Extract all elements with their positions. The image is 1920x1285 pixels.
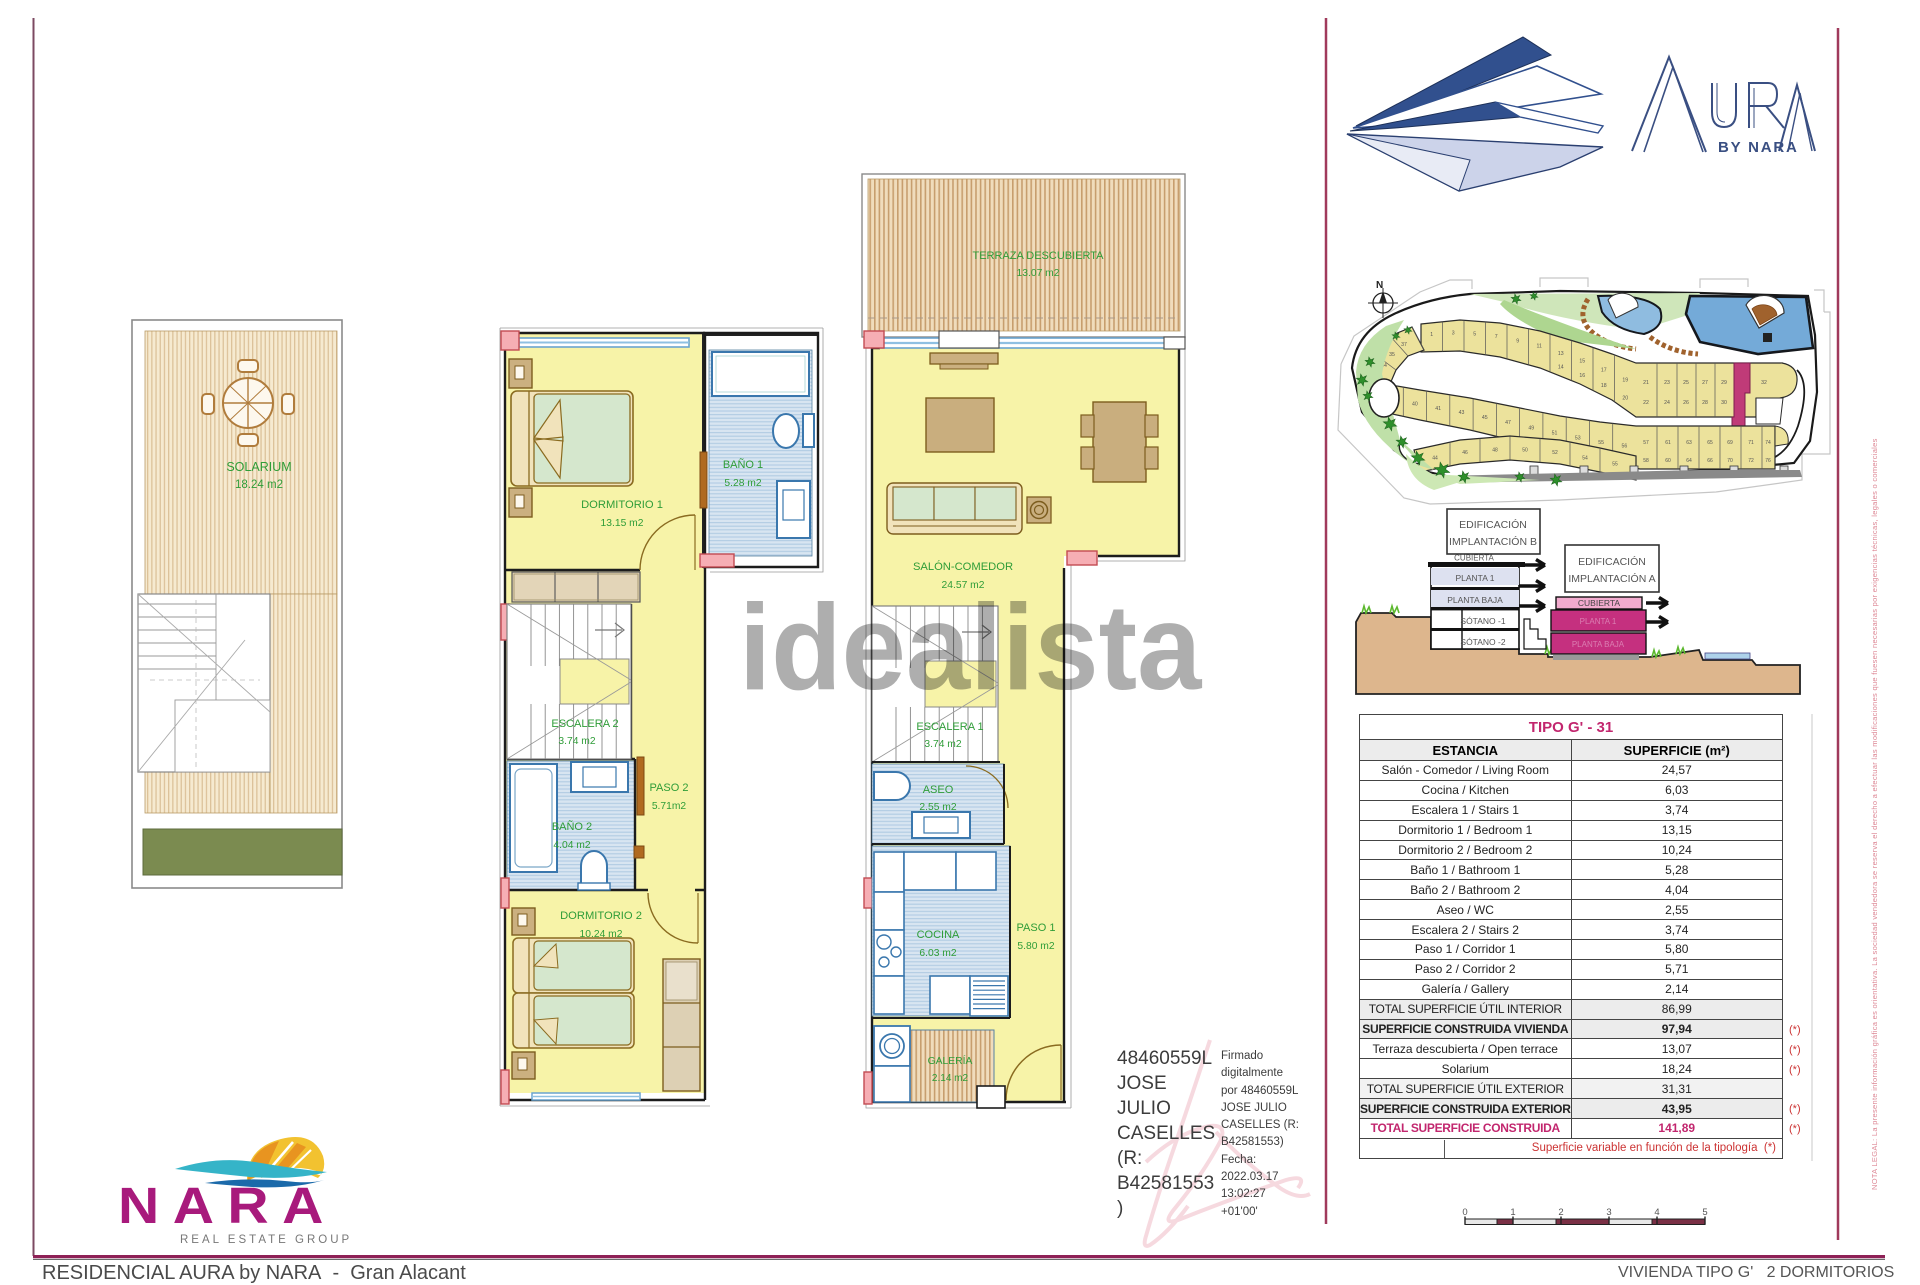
svg-text:BAÑO 2: BAÑO 2	[552, 820, 592, 833]
svg-text:48: 48	[1492, 448, 1498, 454]
svg-text:41: 41	[1435, 406, 1441, 412]
svg-text:BY NARA: BY NARA	[1718, 139, 1799, 156]
svg-text:BAÑO 1: BAÑO 1	[723, 458, 763, 471]
svg-text:24: 24	[1664, 400, 1670, 406]
svg-text:N: N	[1376, 280, 1383, 291]
svg-text:58: 58	[1643, 458, 1649, 464]
svg-text:65: 65	[1707, 440, 1713, 446]
svg-text:37: 37	[1401, 342, 1407, 348]
svg-text:47: 47	[1505, 420, 1511, 426]
svg-text:ASEO: ASEO	[923, 784, 954, 796]
svg-text:15: 15	[1579, 358, 1585, 364]
svg-text:72: 72	[1748, 458, 1754, 464]
svg-text:44: 44	[1432, 456, 1438, 462]
svg-text:63: 63	[1686, 440, 1692, 446]
svg-text:5.71m2: 5.71m2	[652, 801, 687, 812]
svg-text:PLANTA 1: PLANTA 1	[1455, 573, 1494, 583]
svg-text:45: 45	[1482, 415, 1488, 421]
svg-text:IMPLANTACIÓN A: IMPLANTACIÓN A	[1568, 572, 1655, 585]
svg-text:20: 20	[1622, 395, 1628, 401]
svg-text:ESCALERA 2: ESCALERA 2	[551, 718, 618, 730]
svg-text:43: 43	[1459, 410, 1465, 416]
svg-text:SOLARIUM: SOLARIUM	[226, 460, 291, 474]
svg-text:IMPLANTACIÓN B: IMPLANTACIÓN B	[1449, 535, 1537, 548]
svg-text:5.80 m2: 5.80 m2	[1017, 941, 1054, 952]
svg-text:49: 49	[1528, 425, 1534, 431]
svg-text:61: 61	[1665, 440, 1671, 446]
svg-text:23: 23	[1664, 380, 1670, 386]
svg-text:22: 22	[1643, 400, 1649, 406]
svg-text:7: 7	[1495, 334, 1498, 340]
svg-text:PLANTA BAJA: PLANTA BAJA	[1572, 640, 1625, 649]
svg-text:21: 21	[1643, 380, 1649, 386]
svg-text:40: 40	[1412, 401, 1418, 407]
svg-text:13.15 m2: 13.15 m2	[601, 518, 644, 529]
svg-text:17: 17	[1601, 367, 1607, 373]
svg-text:13.07 m2: 13.07 m2	[1017, 268, 1060, 279]
svg-text:EDIFICACIÓN: EDIFICACIÓN	[1459, 518, 1527, 531]
svg-text:2: 2	[1558, 1207, 1563, 1218]
svg-text:2.55 m2: 2.55 m2	[919, 802, 956, 813]
svg-text:46: 46	[1462, 450, 1468, 456]
svg-text:PASO 2: PASO 2	[650, 782, 689, 794]
svg-text:3.74 m2: 3.74 m2	[924, 739, 961, 750]
svg-text:5: 5	[1473, 332, 1476, 338]
svg-text:ESCALERA 1: ESCALERA 1	[916, 721, 983, 733]
svg-text:9: 9	[1516, 338, 1519, 344]
svg-text:28: 28	[1702, 400, 1708, 406]
svg-text:25: 25	[1683, 380, 1689, 386]
svg-text:60: 60	[1665, 458, 1671, 464]
svg-text:26: 26	[1683, 400, 1689, 406]
svg-text:55: 55	[1598, 440, 1604, 446]
svg-text:51: 51	[1552, 431, 1558, 437]
svg-text:76: 76	[1765, 458, 1771, 464]
svg-text:4.04 m2: 4.04 m2	[553, 840, 590, 851]
svg-text:3.74 m2: 3.74 m2	[558, 736, 595, 747]
svg-text:70: 70	[1727, 458, 1733, 464]
svg-text:56: 56	[1621, 444, 1627, 450]
svg-text:29: 29	[1721, 380, 1727, 386]
svg-text:DORMITORIO 1: DORMITORIO 1	[581, 499, 663, 511]
svg-text:EDIFICACIÓN: EDIFICACIÓN	[1578, 555, 1646, 568]
svg-text:18.24 m2: 18.24 m2	[235, 479, 283, 491]
svg-text:PASO 1: PASO 1	[1017, 922, 1056, 934]
svg-text:53: 53	[1575, 435, 1581, 441]
svg-text:11: 11	[1537, 343, 1542, 349]
svg-text:TERRAZA DESCUBIERTA: TERRAZA DESCUBIERTA	[972, 250, 1104, 262]
svg-text:18: 18	[1601, 383, 1607, 389]
svg-text:66: 66	[1707, 458, 1713, 464]
svg-text:PLANTA BAJA: PLANTA BAJA	[1447, 595, 1503, 605]
svg-text:10.24 m2: 10.24 m2	[580, 929, 623, 940]
svg-text:35: 35	[1389, 352, 1395, 358]
svg-text:SALÓN-COMEDOR: SALÓN-COMEDOR	[913, 560, 1013, 573]
svg-text:27: 27	[1702, 380, 1708, 386]
svg-text:3: 3	[1606, 1207, 1611, 1218]
svg-text:30: 30	[1721, 400, 1727, 406]
svg-text:PLANTA 1: PLANTA 1	[1580, 617, 1617, 626]
svg-text:71: 71	[1748, 440, 1754, 446]
svg-text:SÓTANO -2: SÓTANO -2	[1460, 637, 1505, 647]
svg-text:6.03 m2: 6.03 m2	[919, 948, 956, 959]
svg-text:3: 3	[1452, 330, 1455, 336]
svg-text:2.14 m2: 2.14 m2	[932, 1073, 969, 1084]
svg-text:52: 52	[1552, 450, 1558, 456]
svg-text:1: 1	[1430, 332, 1433, 338]
svg-text:5: 5	[1702, 1207, 1707, 1218]
svg-text:19: 19	[1622, 378, 1628, 384]
svg-text:CUBIERTA: CUBIERTA	[1454, 554, 1494, 563]
svg-text:1: 1	[1510, 1207, 1515, 1218]
svg-text:NOTA LEGAL: La presente inform: NOTA LEGAL: La presente información gráf…	[1870, 438, 1879, 1190]
svg-text:54: 54	[1582, 455, 1588, 461]
svg-text:16: 16	[1579, 373, 1585, 379]
svg-text:74: 74	[1765, 440, 1771, 446]
svg-text:5.28 m2: 5.28 m2	[724, 478, 761, 489]
svg-text:13: 13	[1558, 351, 1564, 357]
svg-text:DORMITORIO 2: DORMITORIO 2	[560, 910, 642, 922]
svg-text:57: 57	[1643, 440, 1649, 446]
svg-text:4: 4	[1654, 1207, 1659, 1218]
svg-text:64: 64	[1686, 458, 1692, 464]
svg-text:0: 0	[1462, 1207, 1467, 1218]
svg-text:69: 69	[1727, 440, 1733, 446]
svg-text:CUBIERTA: CUBIERTA	[1578, 598, 1621, 608]
svg-text:SÓTANO -1: SÓTANO -1	[1460, 616, 1505, 626]
svg-text:55: 55	[1612, 462, 1618, 468]
svg-text:COCINA: COCINA	[917, 929, 960, 941]
svg-text:14: 14	[1558, 364, 1564, 370]
svg-text:GALERÍA: GALERÍA	[928, 1054, 973, 1067]
svg-text:50: 50	[1522, 448, 1528, 454]
